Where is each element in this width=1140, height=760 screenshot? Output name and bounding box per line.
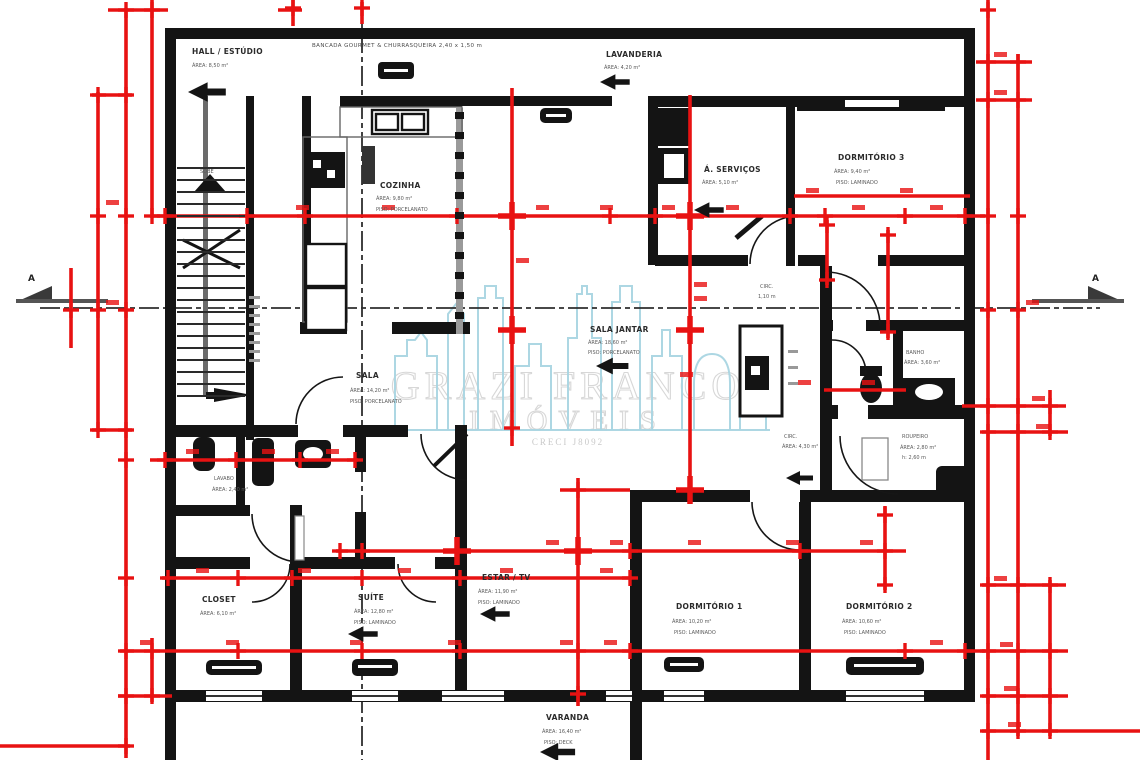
- svg-text:ÁREA: 10,20 m²: ÁREA: 10,20 m²: [672, 618, 711, 625]
- room-label-hall: HALL / ESTÚDIO: [192, 47, 263, 56]
- section-label-right: A: [1092, 274, 1099, 284]
- room-label-closet: CLOSET: [202, 595, 236, 604]
- room-label-suite: SUÍTE: [358, 593, 384, 602]
- svg-text:PISO: LAMINADO: PISO: LAMINADO: [674, 630, 716, 636]
- svg-text:ÁREA: 4,30 m²: ÁREA: 4,30 m²: [782, 443, 818, 450]
- room-label-roupeiro: ROUPEIRO: [902, 434, 928, 440]
- floor-plan: GRAZI FRANCO IMÓVEIS CRECI J8092: [0, 0, 1140, 760]
- svg-text:PISO: LAMINADO: PISO: LAMINADO: [836, 180, 878, 186]
- svg-text:PISO: LAMINADO: PISO: LAMINADO: [844, 630, 886, 636]
- svg-text:ÁREA: 16,40 m²: ÁREA: 16,40 m²: [542, 728, 581, 735]
- svg-text:ÁREA: 11,90 m²: ÁREA: 11,90 m²: [478, 588, 517, 595]
- svg-text:ÁREA: 3,60 m²: ÁREA: 3,60 m²: [904, 359, 940, 366]
- room-label-estar: ESTAR / TV: [482, 573, 531, 582]
- svg-text:PISO: LAMINADO: PISO: LAMINADO: [478, 600, 520, 606]
- svg-text:PISO: LAMINADO: PISO: LAMINADO: [354, 620, 396, 626]
- section-label-left: A: [28, 274, 35, 284]
- svg-text:ÁREA: 18,60 m²: ÁREA: 18,60 m²: [588, 339, 627, 346]
- svg-text:ÁREA: 9,80 m²: ÁREA: 9,80 m²: [376, 195, 412, 202]
- room-label-banho: BANHO: [906, 350, 924, 356]
- direction-icons: [188, 74, 813, 760]
- room-label-circ2: CIRC.: [784, 434, 798, 440]
- svg-text:ÁREA: 4,20 m²: ÁREA: 4,20 m²: [604, 64, 640, 71]
- svg-text:ÁREA: 5,10 m²: ÁREA: 5,10 m²: [702, 179, 738, 186]
- svg-text:PISO: PORCELANATO: PISO: PORCELANATO: [376, 207, 428, 213]
- room-label-dorm1: DORMITÓRIO 1: [676, 602, 743, 611]
- room-label-cozinha: COZINHA: [380, 181, 421, 190]
- svg-text:ÁREA: 12,80 m²: ÁREA: 12,80 m²: [354, 608, 393, 615]
- svg-text:h: 2,60 m: h: 2,60 m: [902, 455, 926, 461]
- staircase: [183, 96, 252, 402]
- island: [740, 326, 798, 416]
- svg-text:ÁREA: 9,40 m²: ÁREA: 9,40 m²: [834, 168, 870, 175]
- svg-text:ÁREA: 2,40 m²: ÁREA: 2,40 m²: [212, 486, 248, 493]
- plan-drawing: A A HALL / ESTÚDIO ÁREA: 8,50 m² BANCADA…: [0, 0, 1140, 760]
- svg-text:PISO: PORCELANATO: PISO: PORCELANATO: [588, 350, 640, 356]
- svg-text:ÁREA: 8,50 m²: ÁREA: 8,50 m²: [192, 62, 228, 69]
- room-label-sala: SALA: [356, 371, 379, 380]
- room-label-dorm3: DORMITÓRIO 3: [838, 153, 905, 162]
- room-label-lavabo: LAVABO: [214, 476, 234, 482]
- room-label-jantar: SALA JANTAR: [590, 325, 649, 334]
- svg-text:PISO: DECK: PISO: DECK: [544, 740, 573, 746]
- room-label-lavanderia: LAVANDERIA: [606, 50, 662, 59]
- top-note: BANCADA GOURMET & CHURRASQUEIRA 2,40 x 1…: [312, 43, 482, 49]
- room-label-varanda: VARANDA: [546, 713, 589, 722]
- svg-text:ÁREA: 10,60 m²: ÁREA: 10,60 m²: [842, 618, 881, 625]
- room-label-servicos: Á. SERVIÇOS: [704, 165, 761, 174]
- svg-text:PISO: PORCELANATO: PISO: PORCELANATO: [350, 399, 402, 405]
- stairs-note: SOBE: [200, 169, 214, 175]
- room-label-dorm2: DORMITÓRIO 2: [846, 602, 913, 611]
- svg-text:ÁREA: 14,20 m²: ÁREA: 14,20 m²: [350, 387, 389, 394]
- room-label-circ-top: CIRC.: [760, 284, 774, 290]
- svg-text:ÁREA: 6,10 m²: ÁREA: 6,10 m²: [200, 610, 236, 617]
- svg-text:1,10 m: 1,10 m: [758, 294, 776, 300]
- kitchen-fixtures: [303, 107, 462, 330]
- svg-text:ÁREA: 2,80 m²: ÁREA: 2,80 m²: [900, 444, 936, 451]
